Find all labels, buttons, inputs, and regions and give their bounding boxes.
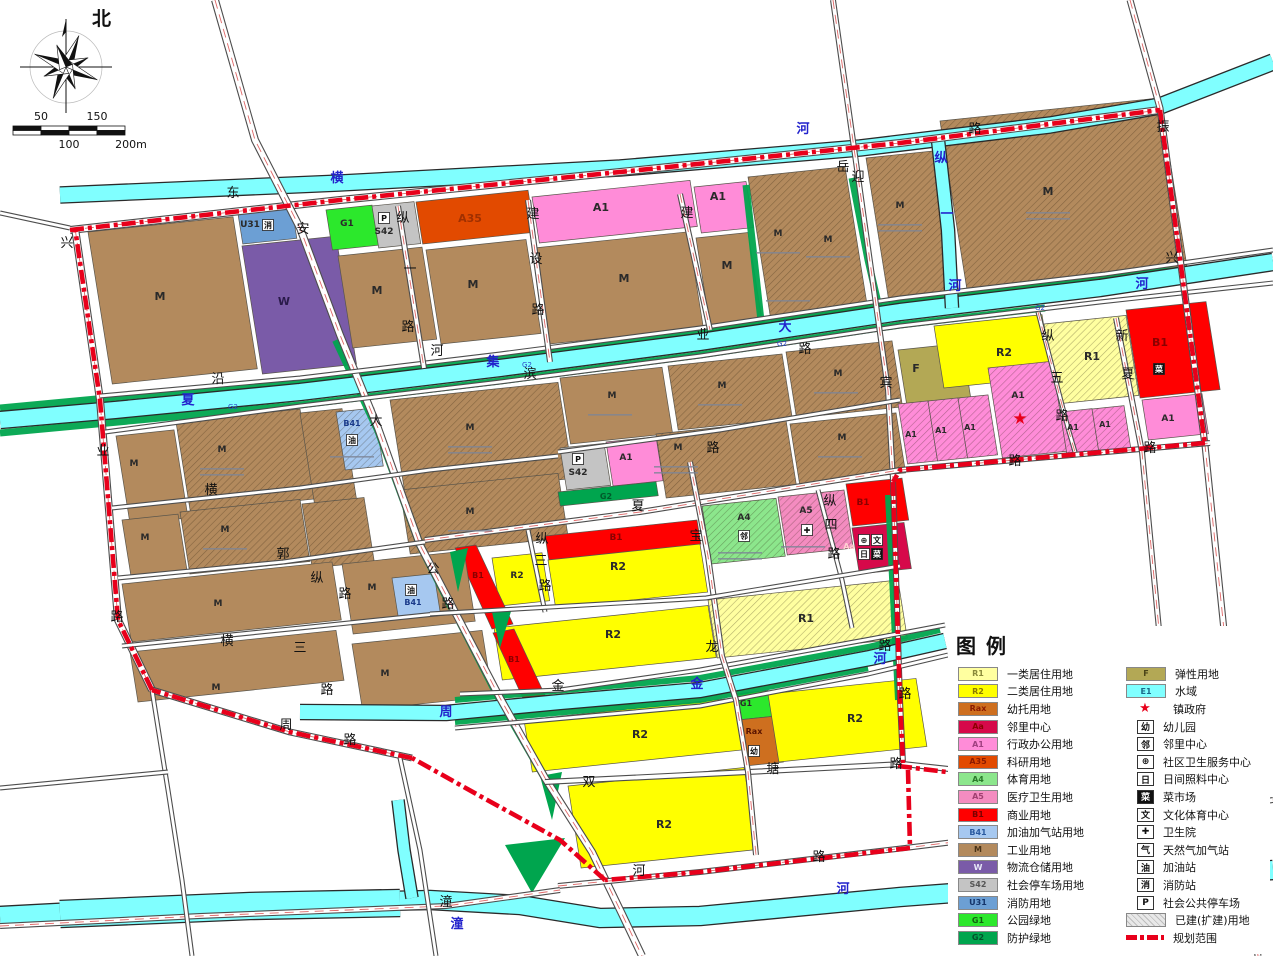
legend-label: 工业用地 [1007,842,1051,858]
legend-swatch-A4: A4 [958,772,998,786]
parcel-label-R2: R2 [632,728,648,741]
parcel-label-B1: B1 [856,498,869,508]
legend-item-S42: S42 社会停车场用地 [948,876,1116,894]
parcel-annotation-line [756,252,800,254]
parcel-label-A1: A1 [619,453,632,463]
facility-icon-菜: 菜 [1154,364,1163,374]
legend-right-column: F弹性用地E1水域★镇政府幼幼儿园邻邻里中心⊕社区卫生服务中心日日间照料中心菜菜… [1116,665,1270,947]
parcel-annotation-line [878,230,922,232]
road-label-路: 路 [1008,453,1021,469]
legend-title: 图例 [956,630,1270,659]
legend-swatch-F: F [1126,667,1166,681]
parcel-B1 [1126,302,1220,398]
legend-label: 社会停车场用地 [1007,877,1084,893]
parcel-M [560,367,673,444]
parcel-label-M: M [214,599,223,609]
parcel-annotation-line [654,466,698,468]
facility-icon-邻: 邻 [739,531,748,541]
legend-swatch-U31: U31 [958,896,998,910]
road-label-路: 路 [706,440,719,456]
road-label-沿: 沿 [211,372,224,387]
parcel-label-A1: A1 [1067,423,1079,432]
road-label-路: 路 [538,578,551,594]
parcel-label-M: M [130,459,139,469]
parcel-A5-hatch [778,490,853,555]
parcel-label-R2: R2 [996,346,1012,359]
parcel-label-A1: A1 [1161,414,1174,424]
facility-icon-油: 油 [348,435,356,445]
road-label-路: 路 [338,586,351,602]
legend-label: 邻里中心 [1007,719,1051,735]
parcel-label-B41: B41 [343,419,361,428]
parcel-label-A5: A5 [799,506,812,516]
river-label-河: 河 [836,881,849,897]
legend-swatch-M: M [958,843,998,857]
road-label-河: 河 [430,344,443,359]
parcel-annotation-line [718,552,762,554]
legend-item-⊕: ⊕社区卫生服务中心 [1116,753,1270,771]
parcel-label-M: M [381,669,390,679]
parcel-label-R2: R2 [605,628,621,641]
legend-label: 防护绿地 [1007,930,1051,946]
parcel-annotation-line [654,472,698,474]
legend-swatch-G1: G1 [958,913,998,927]
parcel-label-M: M [619,272,630,285]
legend-label: 弹性用地 [1175,666,1219,682]
parcel-M [88,217,257,384]
road-label-大: 大 [369,414,382,429]
legend-swatch-A5: A5 [958,790,998,804]
legend-item-E1: E1水域 [1116,683,1270,701]
parcel-label-A1: A1 [1011,391,1024,401]
legend-label: 科研用地 [1007,754,1051,770]
legend-label: 天然气加气站 [1163,842,1229,858]
road-label-振: 振 [1156,120,1169,135]
legend-item-F: F弹性用地 [1116,665,1270,683]
town-government-star-icon: ★ [1012,409,1027,429]
parcel-annotation-line [448,446,492,448]
parcel-label-U31: U31 [240,220,260,230]
river-label-河: 河 [873,651,886,667]
scale-label-200m: 200m [115,138,147,151]
legend-label: 水域 [1175,683,1197,699]
parcel-label-S42: S42 [374,227,393,237]
parcel-label-M: M [221,525,230,535]
legend-icon-气: 气 [1137,843,1154,857]
road-label-双: 双 [582,775,595,790]
road-label-路: 路 [798,341,811,357]
legend-swatch-Rax: Rax [958,702,998,716]
parcel-label-B41: B41 [404,598,422,607]
legend-item-日: 日日间照料中心 [1116,771,1270,789]
parcel-label-B1: B1 [1152,336,1168,349]
road-label-建: 建 [680,206,693,221]
road-label-金: 金 [551,678,564,694]
legend-boundary-line [1126,935,1164,940]
road-label-路: 路 [898,686,911,702]
parcel-annotation-line [330,456,374,458]
legend-item-✚: ✚卫生院 [1116,823,1270,841]
parcel-label-B1: B1 [609,533,622,543]
legend-item-B1: B1 商业用地 [948,806,1116,824]
parcel-label-Aa: Aa [843,542,855,551]
legend-label: 医疗卫生用地 [1007,789,1073,805]
parcel-annotation-line [448,452,492,454]
road-label-纵: 纵 [535,532,548,547]
parcel-M [534,232,703,344]
parcel-label-A1: A1 [964,423,976,432]
parcel-label-R2: R2 [847,712,863,725]
parcel-label-M: M [838,433,847,443]
legend-icon-菜: 菜 [1137,790,1154,804]
planning-map-page: MU31消WG1S42PA35MMA1MA1MMMMMMMB41油MMMMMMM… [0,0,1273,956]
legend-icon-油: 油 [1137,860,1154,874]
legend-item-M: M 工业用地 [948,841,1116,859]
legend-label: 公园绿地 [1007,912,1051,928]
river-label-横: 横 [330,170,344,186]
river-label-大: 大 [778,319,791,335]
parcel-annotation-line [818,456,862,458]
facility-icon-⊕: ⊕ [861,536,868,545]
road-label-路: 路 [1143,440,1156,456]
parcel-label-A4: A4 [737,513,750,523]
legend-label: 加油站 [1163,859,1196,875]
parcel-label-M: M [774,229,783,239]
parcel-label-R1: R1 [1084,350,1100,363]
scale-label-100: 100 [59,138,80,151]
legend-label: 社会公共停车场 [1163,895,1240,911]
river-label-潼: 潼 [450,916,463,932]
legend-label: 二类居住用地 [1007,683,1073,699]
road-label-三: 三 [293,641,306,656]
road-label-夏: 夏 [631,499,644,514]
facility-icon-菜: 菜 [872,549,881,559]
legend-item-A35: A35 科研用地 [948,753,1116,771]
road-label-路: 路 [441,596,454,612]
legend-swatch-B1: B1 [958,808,998,822]
road-label-路: 路 [110,609,123,625]
road-label-东: 东 [226,186,239,201]
green-strip-label: G2 [522,361,532,369]
parcel-label-A1: A1 [710,190,726,203]
river-label-周: 周 [439,705,452,720]
parcel-label-R2: R2 [610,560,626,573]
legend-item-R2: R2 二类居住用地 [948,683,1116,701]
legend-swatch-E1: E1 [1126,684,1166,698]
parcel-annotation-line [588,414,632,416]
legend-swatch-W: W [958,860,998,874]
legend-item-B41: B41 加油加气站用地 [948,823,1116,841]
legend-panel: 图例 R1 一类居住用地R2 二类居住用地Rax 幼托用地Aa 邻里中心A1 行… [948,626,1270,954]
legend-label: 幼托用地 [1007,701,1051,717]
river-label-集: 集 [485,354,500,370]
parcel-annotation-line [806,256,850,258]
legend-item-Aa: Aa 邻里中心 [948,718,1116,736]
legend-label: 社区卫生服务中心 [1163,754,1251,770]
legend-item-A4: A4 体育用地 [948,771,1116,789]
facility-icon-✚: ✚ [804,526,811,535]
river-label-金: 金 [689,676,704,692]
road-label-路: 路 [812,849,825,865]
parcel-label-S42: S42 [568,468,587,478]
parcel-label-R2: R2 [656,818,672,831]
facility-icon-P: P [575,455,581,464]
legend-item-hatch: 已建(扩建)用地 [1116,911,1270,929]
facility-icon-油: 油 [407,585,415,595]
legend-swatch-R2: R2 [958,684,998,698]
road-label-纵: 纵 [310,571,323,586]
parcel-label-F: F [912,362,920,375]
river-label-河: 河 [1135,276,1148,292]
legend-item-W: W 物流仓储用地 [948,859,1116,877]
parcel-label-M: M [834,369,843,379]
river-label-纵: 纵 [934,150,947,166]
parcel-label-B1: B1 [472,571,484,580]
facility-icon-消: 消 [264,220,272,230]
parcel-annotation-line [1026,218,1070,220]
road-label-岳: 岳 [836,160,849,175]
parcel-A1-hatch [1092,406,1131,451]
parcel-annotation-line [878,224,922,226]
legend-item-G1: G1 公园绿地 [948,911,1116,929]
legend-item-A5: A5 医疗卫生用地 [948,788,1116,806]
green-strip-label: G2 [228,403,238,411]
river-label-一: 一 [940,207,953,222]
road-label-塘: 塘 [766,761,779,777]
parcel-annotation-line [1026,212,1070,214]
parcel-label-B1: B1 [508,655,520,664]
road-label-纵: 纵 [823,494,836,509]
town-government-star-icon: ★ [1126,701,1164,716]
road-label-迎: 迎 [851,170,864,185]
parcel-label-M: M [722,259,733,272]
legend-icon-文: 文 [1137,808,1154,822]
parcel-label-M: M [1043,185,1054,198]
parcel-label-G1: G1 [740,699,753,708]
legend-item-气: 气天然气加气站 [1116,841,1270,859]
river-label-夏: 夏 [180,393,195,408]
legend-label: 卫生院 [1163,824,1196,840]
road-label-路: 路 [968,121,981,137]
legend-label: 幼儿园 [1163,719,1196,735]
legend-item-文: 文文化体育中心 [1116,806,1270,824]
road-label-业: 业 [696,328,709,343]
facility-icon-P: P [381,214,387,223]
legend-item-消: 消消防站 [1116,876,1270,894]
parcel-label-M: M [468,278,479,291]
legend-label: 镇政府 [1173,701,1206,717]
road-label-纵: 纵 [396,211,409,226]
green-strip-label: G2 [777,340,787,348]
parcel-label-G1: G1 [340,219,354,229]
legend-item-A1: A1 行政办公用地 [948,735,1116,753]
legend-label: 体育用地 [1007,771,1051,787]
parcel-label-R2: R2 [510,571,523,581]
road-label-河: 河 [632,864,645,879]
legend-label: 消防站 [1163,877,1196,893]
legend-item-R1: R1 一类居住用地 [948,665,1116,683]
legend-icon-幼: 幼 [1137,720,1154,734]
road-label-路: 路 [401,319,414,335]
road-label-设: 设 [529,252,542,267]
parcel-label-M: M [368,583,377,593]
parcel-label-M: M [466,507,475,517]
parcel-annotation-line [814,392,858,394]
parcel-label-R1: R1 [798,612,814,625]
legend-item-Rax: Rax 幼托用地 [948,700,1116,718]
road-label-夏: 夏 [1121,367,1134,382]
legend-label: 已建(扩建)用地 [1175,912,1250,928]
road-label-建: 建 [526,207,539,222]
legend-swatch-B41: B41 [958,825,998,839]
legend-icon-⊕: ⊕ [1137,755,1154,769]
legend-icon-P: P [1137,896,1154,910]
road-label-横: 横 [204,483,217,498]
road-label-公: 公 [426,562,439,577]
facility-icon-文: 文 [873,535,882,545]
legend-icon-邻: 邻 [1137,737,1154,751]
parcel-annotation-line [448,530,492,532]
parcel-label-M: M [896,201,905,211]
road-label-安: 安 [296,222,309,237]
parcel-label-M: M [141,533,150,543]
legend-label: 消防用地 [1007,895,1051,911]
parcel-M [426,240,541,345]
legend-swatch-G2: G2 [958,931,998,945]
parcel-label-A1: A1 [905,430,917,439]
legend-built-area-swatch [1126,913,1166,927]
parcel-label-M: M [824,235,833,245]
road-label-横: 横 [220,634,233,649]
road-label-兴: 兴 [60,236,73,251]
legend-icon-✚: ✚ [1137,825,1154,839]
river-label-河: 河 [796,121,809,137]
road-label-一: 一 [403,262,416,277]
legend-item-幼: 幼幼儿园 [1116,718,1270,736]
parcel-label-A1: A1 [935,426,947,435]
legend-item-邻: 邻邻里中心 [1116,735,1270,753]
parcel-label-M: M [218,445,227,455]
legend-label: 商业用地 [1007,807,1051,823]
legend-left-column: R1 一类居住用地R2 二类居住用地Rax 幼托用地Aa 邻里中心A1 行政办公… [948,665,1116,947]
parcel-label-M: M [718,381,727,391]
road-label-路: 路 [343,732,356,748]
parcel-annotation-line [718,558,762,560]
compass-north-label: 北 [92,8,111,30]
legend-icon-日: 日 [1137,772,1154,786]
legend-swatch-A1: A1 [958,737,998,751]
road-label-五: 五 [1050,371,1063,386]
legend-swatch-R1: R1 [958,667,998,681]
legend-swatch-Aa: Aa [958,720,998,734]
legend-item-dash: 规划范围 [1116,929,1270,947]
parcel-label-M: M [674,443,683,453]
parcel-annotation-line [698,404,742,406]
scale-label-50: 50 [34,110,48,123]
parcel-label-M: M [608,391,617,401]
legend-item-油: 油加油站 [1116,859,1270,877]
parcel-label-W: W [278,295,290,308]
parcel-annotation-line [781,546,825,548]
legend-label: 物流仓储用地 [1007,859,1073,875]
parcel-label-G2: G2 [600,492,612,501]
road-label-郭: 郭 [276,546,289,562]
legend-label: 一类居住用地 [1007,666,1073,682]
legend-item-G2: G2 防护绿地 [948,929,1116,947]
road-label-业: 业 [96,444,109,459]
road-label-潼: 潼 [439,894,452,910]
road-label-周: 周 [279,718,292,733]
legend-label: 加油加气站用地 [1007,824,1084,840]
legend-label: 行政办公用地 [1007,736,1073,752]
road-label-路: 路 [827,546,840,562]
road-label-龙: 龙 [705,640,718,655]
parcel-M [338,247,437,348]
road-label-路: 路 [889,756,902,772]
green-strip-label: G2 [1035,304,1045,312]
parcel-M [122,514,187,578]
road-label-路: 路 [320,682,333,698]
parcel-label-M: M [372,284,383,297]
facility-icon-日: 日 [860,550,868,559]
parcel-label-M: M [212,683,221,693]
legend-item-P: P社会公共停车场 [1116,894,1270,912]
road-label-新: 新 [1115,328,1128,344]
parcel-M-hatch [656,420,796,498]
legend-swatch-A35: A35 [958,755,998,769]
parcel-annotation-line [200,468,244,470]
parcel-B1 [846,478,909,526]
legend-label: 日间照料中心 [1163,771,1229,787]
road-label-路: 路 [531,302,544,318]
parcel-label-M: M [466,423,475,433]
parcel-annotation-line [203,548,247,550]
river-label-河: 河 [948,278,961,294]
legend-label: 规划范围 [1173,930,1217,946]
legend-label: 文化体育中心 [1163,807,1229,823]
road-label-四: 四 [824,518,837,533]
legend-label: 菜市场 [1163,789,1196,805]
road-label-纵: 纵 [1041,329,1054,344]
legend-item-★: ★镇政府 [1116,700,1270,718]
scale-label-150: 150 [87,110,108,123]
road-label-路: 路 [1055,408,1068,424]
facility-icon-幼: 幼 [750,746,758,756]
parcel-label-Rax: Rax [746,727,764,736]
legend-icon-消: 消 [1137,878,1154,892]
legend-label: 邻里中心 [1163,736,1207,752]
legend-swatch-S42: S42 [958,878,998,892]
legend-item-菜: 菜菜市场 [1116,788,1270,806]
parcel-label-M: M [155,290,166,303]
road-label-宾: 宾 [879,375,892,391]
parcel-annotation-line [766,300,810,302]
parcel-label-A1: A1 [1099,420,1111,429]
parcel-label-A1: A1 [593,201,609,214]
road-label-宝: 宝 [689,529,702,544]
parcel-annotation-line [200,474,244,476]
legend-item-U31: U31 消防用地 [948,894,1116,912]
road-label-三: 三 [534,554,547,569]
parcel-label-A35: A35 [458,212,482,225]
road-label-兴: 兴 [1165,251,1178,266]
